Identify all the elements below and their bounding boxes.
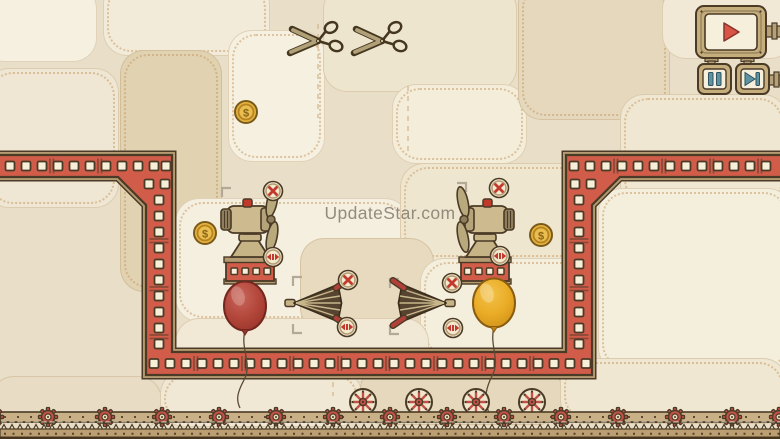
coin-dollar-icon: $ (202, 229, 208, 241)
scissors-icon[interactable] (354, 20, 408, 53)
coin-dollar-icon: $ (243, 108, 249, 120)
delete-button[interactable] (490, 179, 509, 198)
scissors-icon[interactable] (290, 20, 344, 53)
delete-button[interactable] (264, 182, 283, 201)
coin: $ (530, 224, 552, 246)
coin: $ (194, 222, 216, 244)
conveyor (0, 389, 780, 439)
hud-panel (696, 6, 780, 94)
fan-right[interactable] (455, 186, 514, 284)
move-button[interactable] (491, 247, 510, 266)
skip-button[interactable] (736, 64, 769, 94)
delete-button[interactable] (339, 271, 358, 290)
delete-button[interactable] (443, 274, 462, 293)
wall-structure (0, 155, 780, 375)
game-stage: $ $ $ (0, 0, 780, 439)
umbrella-left[interactable] (285, 281, 347, 326)
coin: $ (235, 101, 257, 123)
coin-dollar-icon: $ (538, 231, 544, 243)
move-button[interactable] (338, 318, 357, 337)
pause-button[interactable] (698, 64, 731, 94)
balloon-red[interactable] (224, 282, 266, 409)
play-screen-button[interactable] (696, 6, 766, 58)
move-button[interactable] (264, 248, 283, 267)
watermark: UpdateStar.com (280, 203, 500, 224)
move-button[interactable] (444, 319, 463, 338)
